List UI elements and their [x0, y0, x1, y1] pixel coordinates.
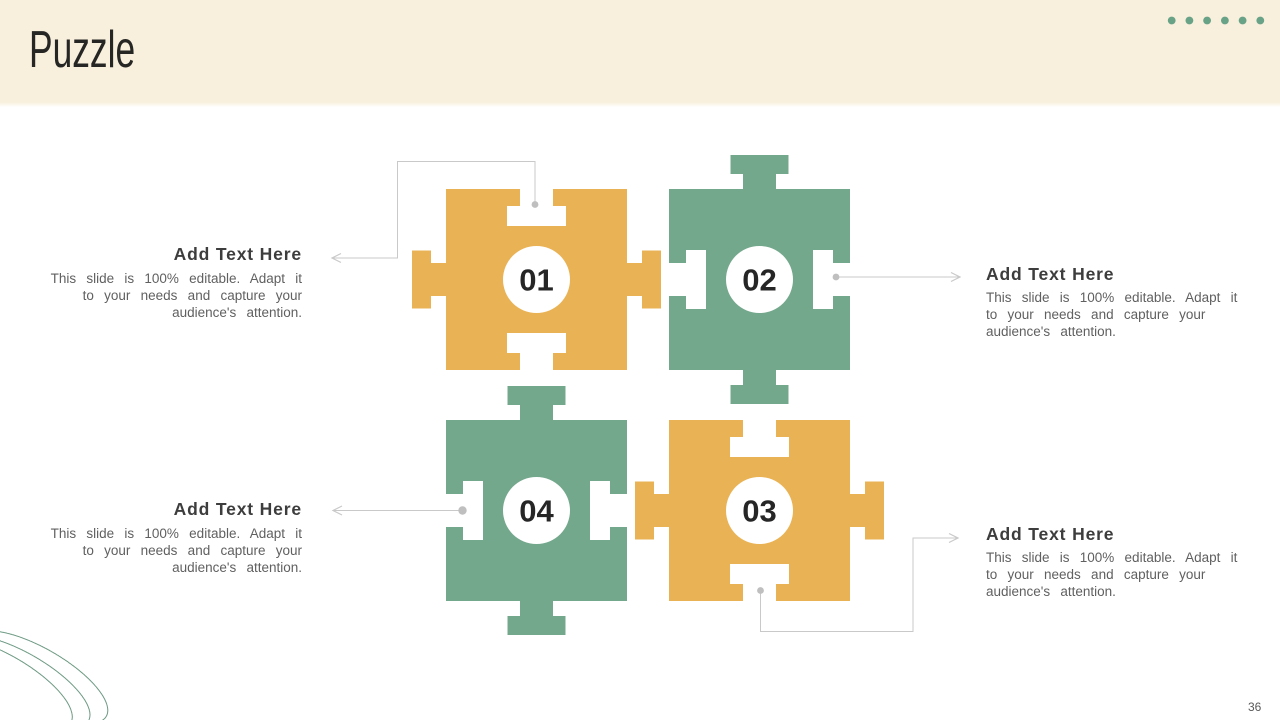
svg-text:01: 01: [519, 263, 553, 298]
svg-text:02: 02: [742, 263, 776, 298]
svg-text:04: 04: [519, 494, 554, 529]
svg-text:03: 03: [742, 494, 776, 529]
